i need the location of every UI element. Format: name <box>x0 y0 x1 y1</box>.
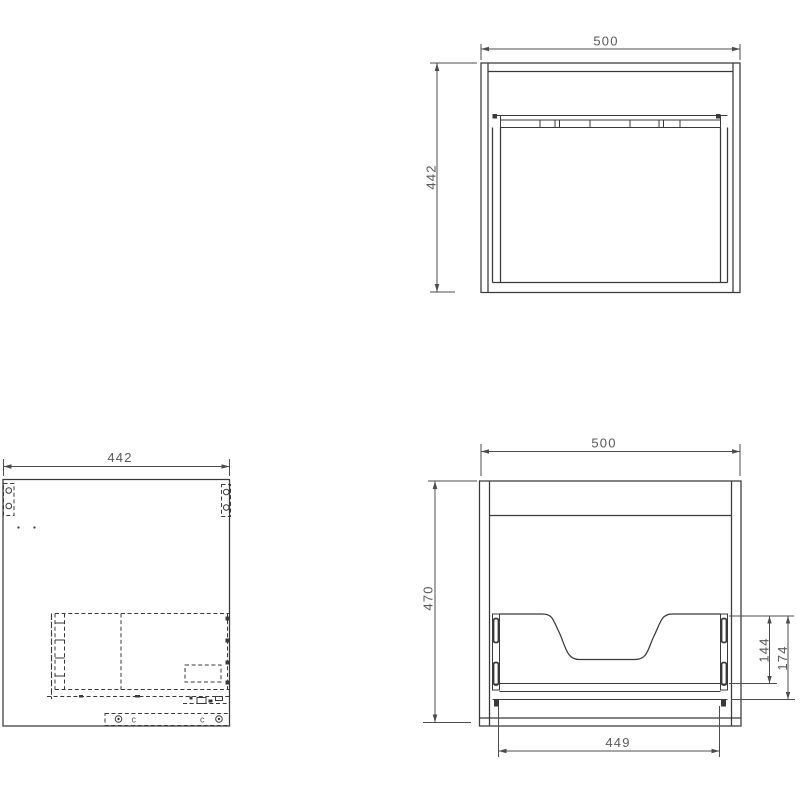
cam-mark-label: c <box>200 715 205 725</box>
cam-lock-center <box>117 718 119 720</box>
dim-label-rear-width: 500 <box>591 436 616 451</box>
pilot-hole-dot <box>17 526 19 528</box>
dim-label-rear-height: 470 <box>421 585 436 610</box>
slide-fixing-mark <box>226 617 230 621</box>
slide-fixing-mark <box>226 661 230 665</box>
rail-corner-fitting-left <box>493 114 498 119</box>
hardware-mark <box>209 700 213 703</box>
drawing-page: 500 442 <box>0 0 800 800</box>
dim-label-top-width: 500 <box>593 34 618 49</box>
pilot-hole-dot <box>33 526 35 528</box>
cam-mark-label: c <box>132 715 137 725</box>
dim-label-drawer-slide-height: 144 <box>757 637 772 662</box>
dim-label-drawer-opening-width: 449 <box>605 735 630 750</box>
rail-bump-mark <box>79 695 83 698</box>
hardware-mark <box>190 697 193 700</box>
rail-corner-fitting-right <box>716 114 721 119</box>
slide-fixing-mark <box>226 681 230 685</box>
dim-label-top-depth: 442 <box>424 164 439 189</box>
rail-bump-mark <box>135 695 140 698</box>
dim-label-drawer-assembly-height: 174 <box>775 645 790 670</box>
slide-foot <box>721 700 726 707</box>
cam-lock-center <box>218 718 220 720</box>
slide-foot <box>494 700 499 707</box>
dim-label-side-depth: 442 <box>107 450 132 465</box>
slide-fixing-mark <box>226 639 230 643</box>
technical-drawing-canvas: 500 442 <box>0 0 800 800</box>
